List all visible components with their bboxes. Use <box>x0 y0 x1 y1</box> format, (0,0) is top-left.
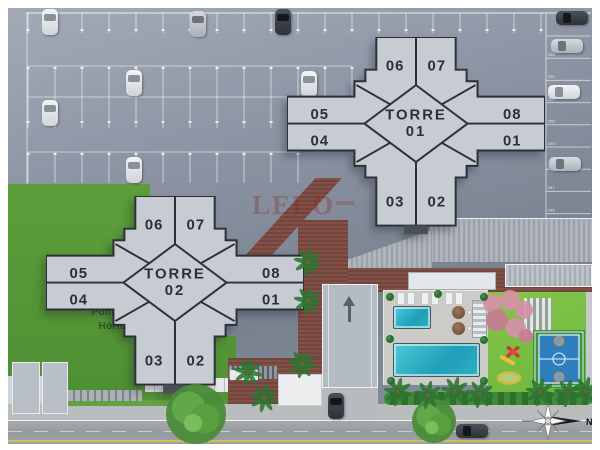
frame-border <box>0 0 8 450</box>
stall-number-mark <box>189 67 192 69</box>
car <box>456 424 488 438</box>
side-table <box>467 310 472 315</box>
stall-number: 252 <box>548 74 555 79</box>
car <box>551 39 583 53</box>
playground <box>493 340 539 390</box>
yellow-lane-line <box>8 440 592 442</box>
flowering-trees <box>480 290 536 346</box>
unit-number: 07 <box>187 218 206 234</box>
car-windshield <box>463 426 471 436</box>
unit-number: 03 <box>386 194 405 210</box>
stall-number-mark <box>108 29 111 31</box>
car <box>548 85 580 99</box>
stall-number-mark <box>81 121 84 123</box>
kids-pool <box>393 306 431 329</box>
sun-lounger <box>445 292 453 305</box>
sun-lounger <box>431 292 439 305</box>
unit-number: 08 <box>262 266 281 282</box>
watermark-bar <box>336 201 354 205</box>
stall-number-mark <box>216 121 219 123</box>
stall-number-mark <box>54 67 57 69</box>
unit-number: 04 <box>310 134 329 150</box>
unit-number: 05 <box>69 266 88 282</box>
curb-line <box>8 420 592 421</box>
car-windshield <box>44 105 56 112</box>
stall-number-mark <box>108 153 111 155</box>
tower-entrance-stub <box>163 385 187 394</box>
stall-number-mark <box>81 29 84 31</box>
stall-number-mark <box>189 121 192 123</box>
stall-number-mark <box>162 29 165 31</box>
stall-number-mark <box>216 29 219 31</box>
stall-number-mark <box>513 29 516 31</box>
lane-marking <box>8 431 592 432</box>
stall-number-mark <box>486 29 489 31</box>
stall-number-mark <box>243 153 246 155</box>
stall-number-mark <box>135 29 138 31</box>
car-windshield <box>556 159 564 169</box>
car-windshield <box>128 75 140 82</box>
sun-lounger <box>421 292 429 305</box>
parasol-icon <box>452 322 465 335</box>
unit-number: 02 <box>187 353 206 369</box>
unit-number: 06 <box>386 59 405 75</box>
tower-02-footprint: 06 07 05 04 08 01 03 02 TORRE 02 <box>46 196 304 398</box>
stall-number-mark <box>405 29 408 31</box>
stall-number-mark <box>27 121 30 123</box>
stall-number-mark <box>243 67 246 69</box>
stall-number-mark <box>270 153 273 155</box>
stall-number-mark <box>27 29 30 31</box>
stall-number-mark <box>27 67 30 69</box>
ramp-arrow-head <box>343 296 355 306</box>
frame-border <box>0 0 600 8</box>
unit-number: 08 <box>503 107 522 123</box>
parasol-icon <box>452 306 465 319</box>
stall-number-mark <box>54 153 57 155</box>
stall-number: 246 <box>548 207 555 212</box>
tower-number: 02 <box>165 283 186 299</box>
unit-number: 07 <box>428 59 447 75</box>
sports-court <box>533 330 585 388</box>
stall-number-mark <box>135 67 138 69</box>
car-windshield <box>44 14 56 21</box>
car-windshield <box>128 162 140 169</box>
sun-lounger <box>407 292 415 305</box>
stall-number-mark <box>432 29 435 31</box>
pavilion-roof <box>408 272 496 290</box>
sun-lounger <box>455 292 463 305</box>
car-windshield <box>192 16 204 23</box>
stall-number-mark <box>270 67 273 69</box>
car <box>42 9 58 35</box>
outdoor-parking-box <box>12 362 40 414</box>
stall-number-mark <box>162 121 165 123</box>
stall-number-mark <box>81 67 84 69</box>
car <box>275 9 291 35</box>
stall-number-mark <box>270 121 273 123</box>
unit-number: 03 <box>145 353 164 369</box>
stall-number: 249 <box>548 141 555 146</box>
car-windshield <box>558 41 566 51</box>
car-windshield <box>563 13 571 23</box>
developer-watermark: LELO <box>252 190 335 221</box>
car <box>549 157 581 171</box>
unit-number: 04 <box>69 293 88 309</box>
tower-entrance-stub <box>404 226 428 235</box>
frame-border <box>592 0 600 450</box>
car <box>126 70 142 96</box>
stall-number-mark <box>270 29 273 31</box>
unit-number: 02 <box>428 194 447 210</box>
car <box>190 11 206 37</box>
sidewalk <box>8 404 592 420</box>
sun-lounger <box>397 292 405 305</box>
stall-number-mark <box>135 121 138 123</box>
swimming-pool <box>393 343 480 377</box>
stall-number-mark <box>81 153 84 155</box>
stall-number-mark <box>378 29 381 31</box>
site-plan: 253252251250249248247246245244 Pomar e H… <box>0 0 600 450</box>
stall-number-mark <box>162 67 165 69</box>
car <box>126 157 142 183</box>
unit-number: 01 <box>503 134 522 150</box>
stall-number-mark <box>216 153 219 155</box>
compass-rose: N <box>518 398 596 444</box>
stall-number-mark <box>243 29 246 31</box>
tower-name: TORRE <box>144 267 206 283</box>
tower-number: 01 <box>406 124 427 140</box>
unit-number: 01 <box>262 293 281 309</box>
stall-number-mark <box>324 29 327 31</box>
side-table <box>467 326 472 331</box>
car <box>556 11 588 25</box>
unit-number: 05 <box>310 107 329 123</box>
garage-roof-lower <box>505 264 592 287</box>
car-windshield <box>330 398 342 405</box>
tower-name: TORRE <box>385 108 447 124</box>
car <box>42 100 58 126</box>
frame-border <box>0 444 600 450</box>
car <box>328 393 344 419</box>
stall-number: 247 <box>548 185 555 190</box>
stall-number-mark <box>135 153 138 155</box>
stall-number-mark <box>540 29 543 31</box>
stall-number-mark <box>297 29 300 31</box>
stall-number: 250 <box>548 119 555 124</box>
stall-number-mark <box>216 67 219 69</box>
unit-number: 06 <box>145 218 164 234</box>
car-windshield <box>277 14 289 21</box>
stall-number-mark <box>243 121 246 123</box>
stall-number-mark <box>459 29 462 31</box>
stall-number-mark <box>351 29 354 31</box>
stall-number-mark <box>162 153 165 155</box>
ramp-arrow <box>348 306 351 322</box>
stall-number-mark <box>108 121 111 123</box>
stall-number-mark <box>27 153 30 155</box>
car-windshield <box>555 87 563 97</box>
stall-number-mark <box>189 153 192 155</box>
stall-number-mark <box>108 67 111 69</box>
